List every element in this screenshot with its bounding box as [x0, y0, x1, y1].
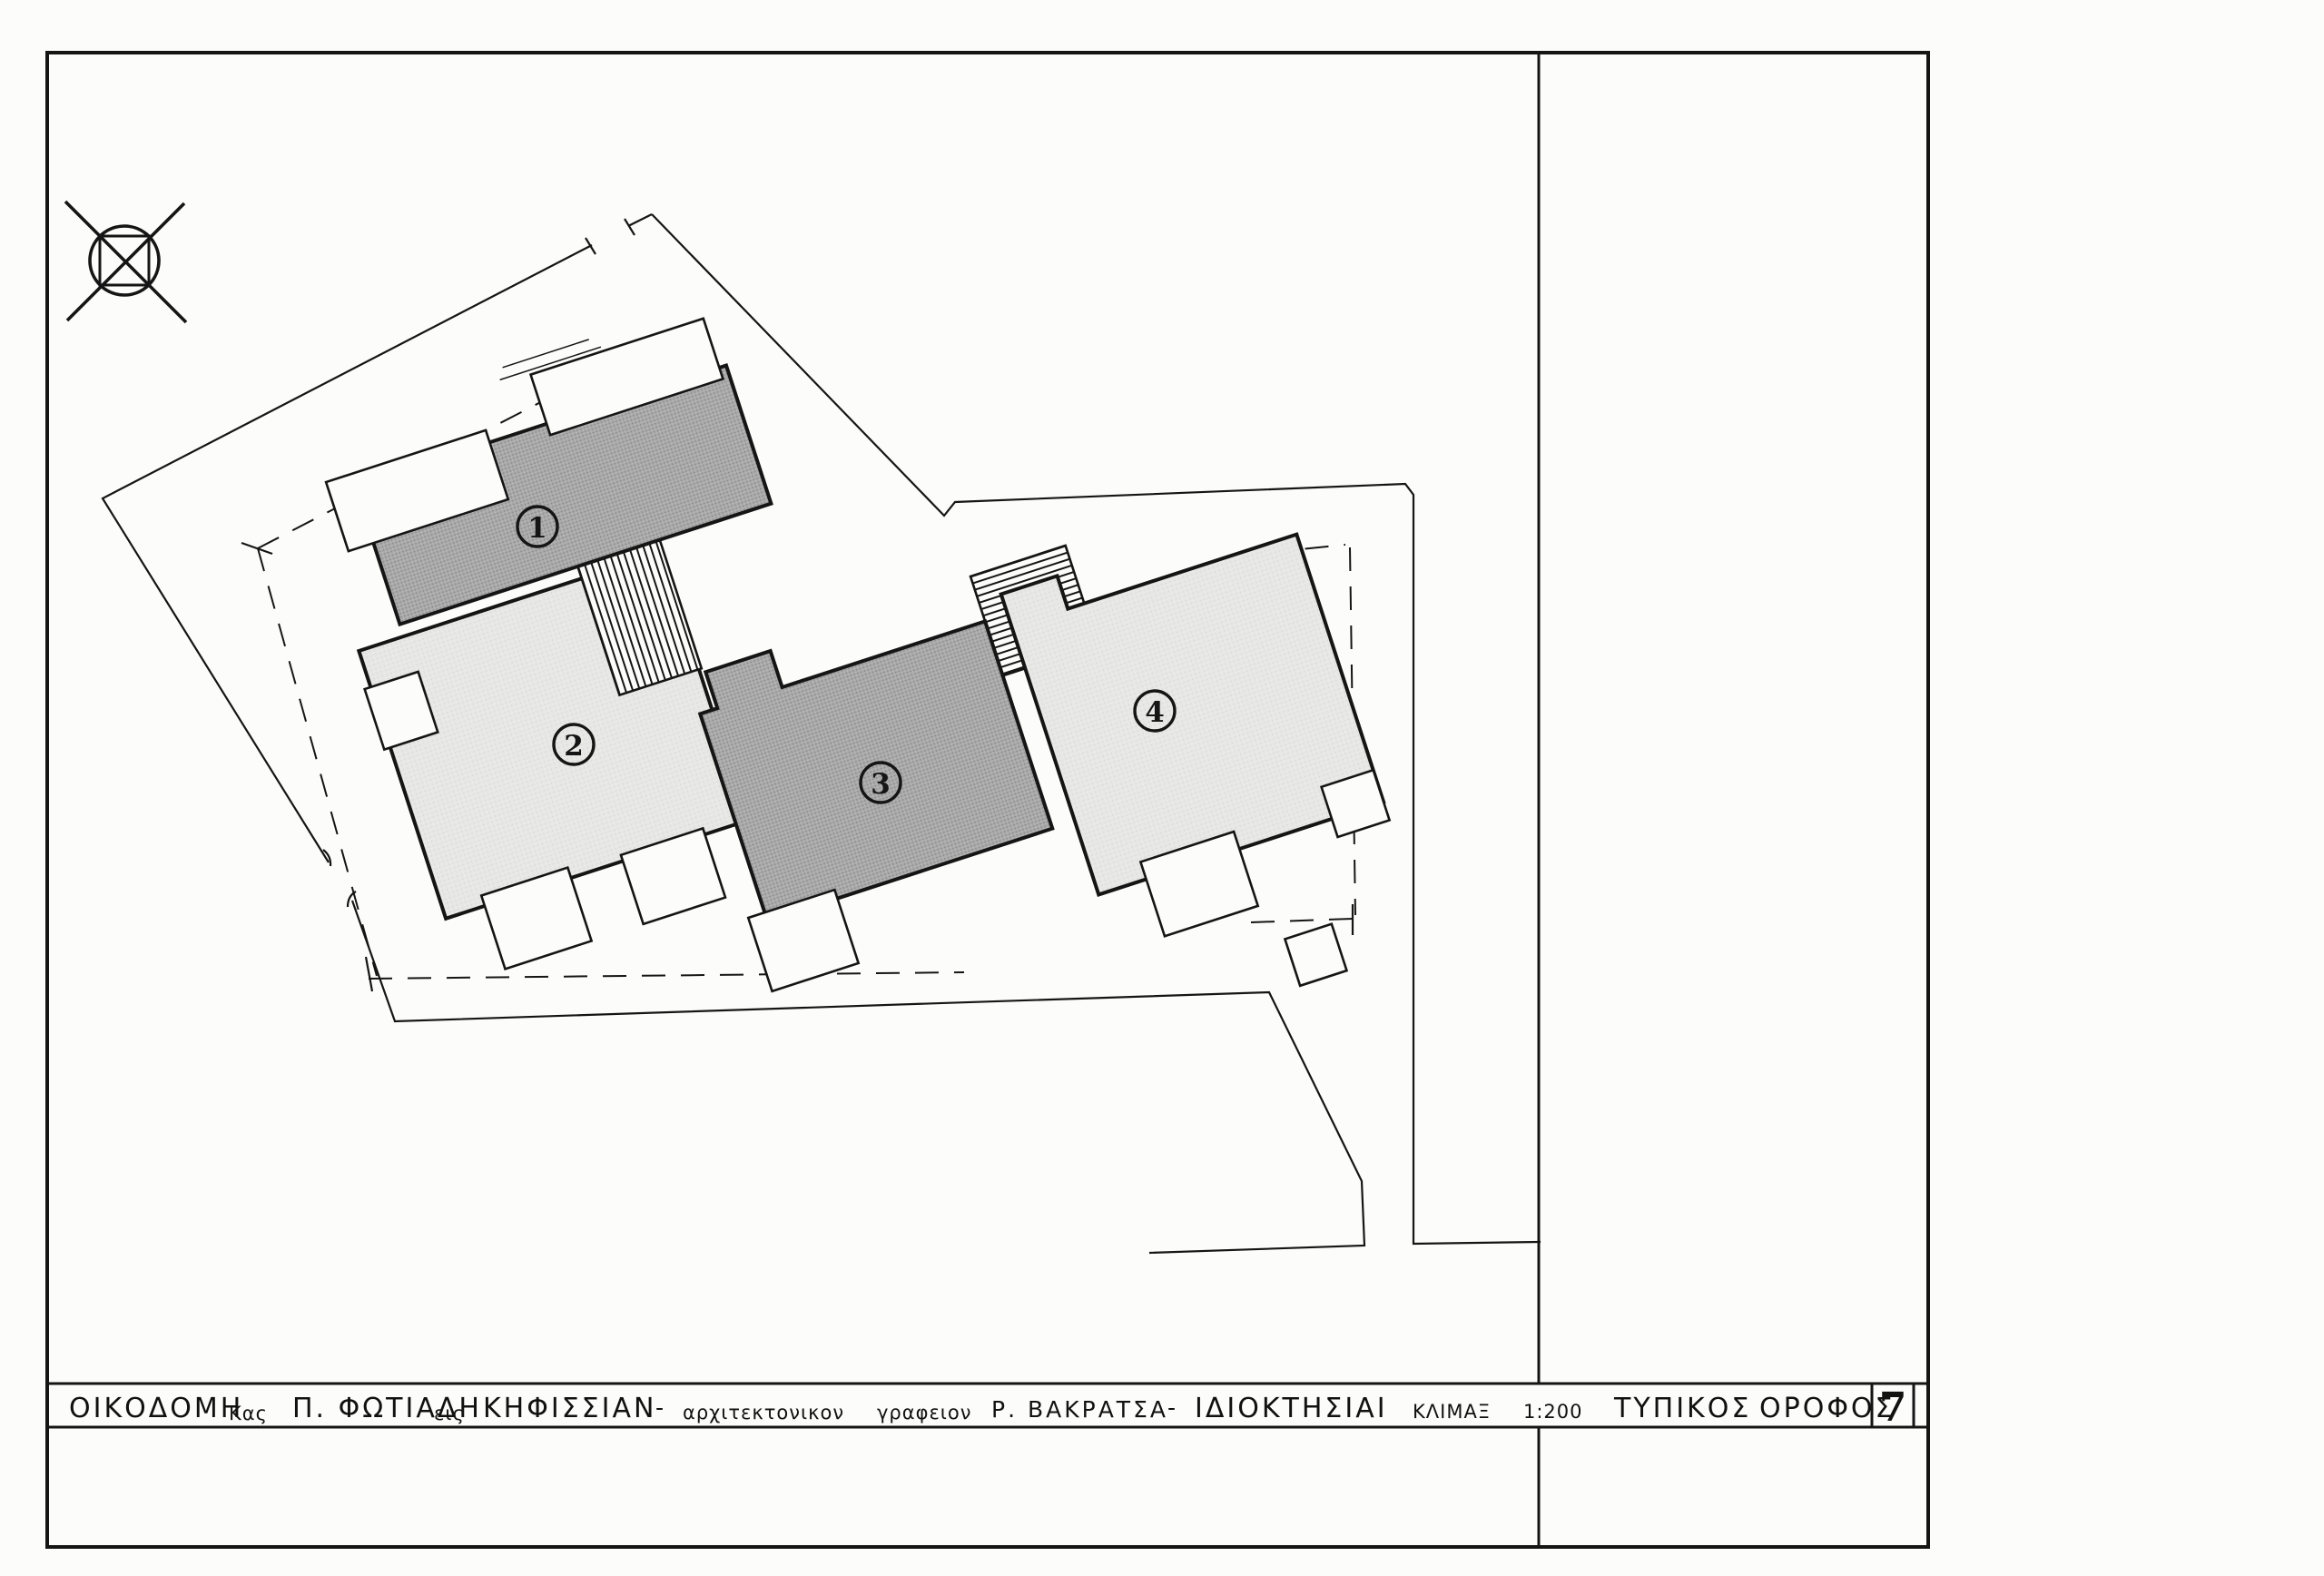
plan-type-word-2: ΟΡΟΦΟΣ — [1759, 1393, 1896, 1424]
location: ΚΗΦΙΣΣΙΑΝ — [483, 1393, 656, 1424]
office-word-1: αρχιτεκτονικον — [683, 1402, 844, 1423]
svg-text:4: 4 — [1145, 696, 1165, 729]
sheet-number: 7 — [1879, 1384, 1907, 1431]
location-prefix: εις — [434, 1403, 465, 1424]
svg-text:1: 1 — [527, 512, 547, 545]
svg-text:3: 3 — [871, 768, 891, 801]
architect-name: Ρ. ΒΑΚΡΑΤΣΑ — [991, 1396, 1168, 1423]
owner-prefix: Κας — [229, 1403, 268, 1424]
project-label: ΟΙΚΟΔΟΜΗ — [69, 1393, 243, 1424]
dash-1: - — [655, 1394, 666, 1421]
subject: ΙΔΙΟΚΤΗΣΙΑΙ — [1195, 1393, 1388, 1424]
drawing-sheet: 1 2 3 4 ΟΙΚΟΔΟΜΗ Κας Π. ΦΩΤΙΑΔΗ εις ΚΗΦΙ… — [0, 0, 2324, 1576]
plan-type-word-1: ΤΥΠΙΚΟΣ — [1613, 1393, 1751, 1424]
scale-label: ΚΛΙΜΑΞ — [1413, 1401, 1491, 1423]
dash-2: - — [1167, 1394, 1178, 1421]
scale-value: 1:200 — [1523, 1401, 1583, 1423]
svg-text:2: 2 — [564, 730, 584, 763]
office-word-2: γραφειον — [877, 1402, 972, 1423]
